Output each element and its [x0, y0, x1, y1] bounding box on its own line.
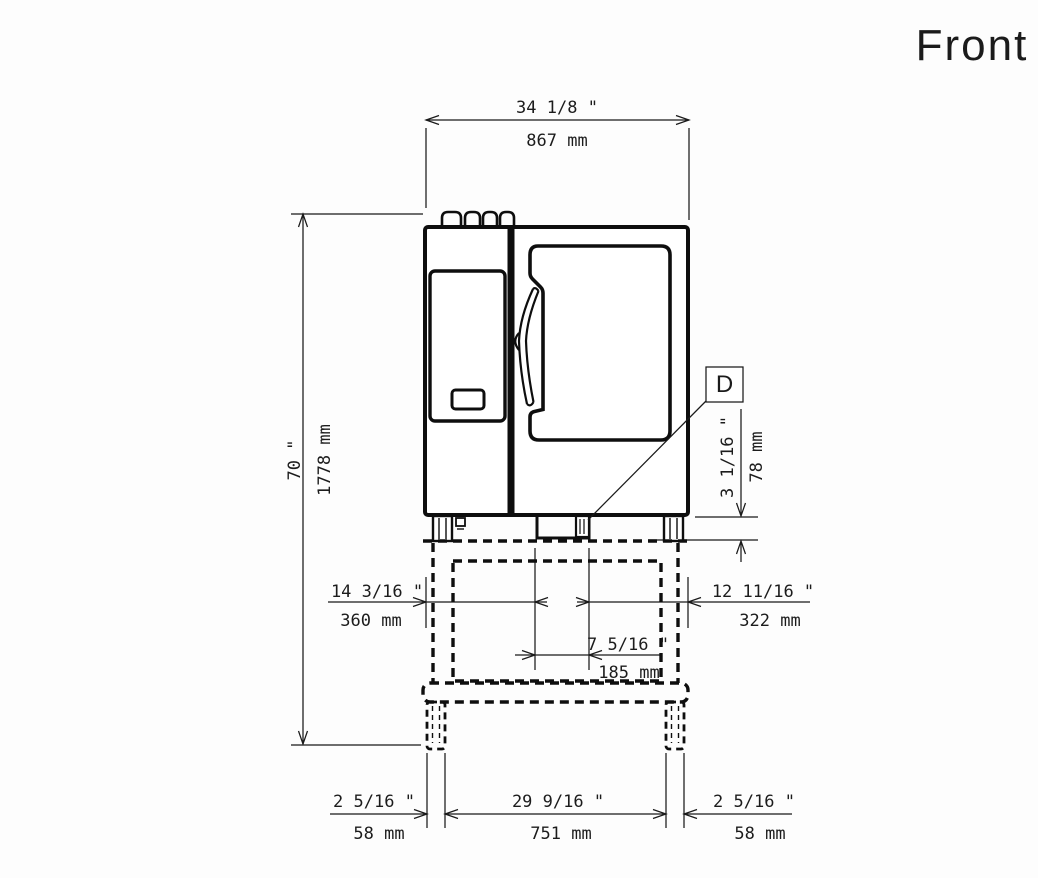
stand-bottom-rail — [423, 683, 688, 702]
dim-offset-left-mm: 360 mm — [340, 611, 401, 631]
dim-height-mm: 1778 mm — [315, 424, 335, 496]
dim-height-in: 70 " — [285, 440, 305, 481]
right-foot — [664, 516, 683, 541]
drawing-svg: D 34 1/8 " 867 mm 70 " 1778 mm 3 1/16 " … — [0, 0, 1038, 878]
technical-drawing-front-view: D 34 1/8 " 867 mm 70 " 1778 mm 3 1/16 " … — [0, 0, 1038, 878]
dim-leg-span-mm: 751 mm — [530, 824, 591, 844]
view-title: Front — [916, 21, 1029, 70]
detail-label: D — [716, 371, 733, 398]
dim-leg-right-in: 2 5/16 " — [713, 792, 795, 812]
oven-feet — [433, 515, 683, 541]
dim-drain-mm: 185 mm — [598, 663, 659, 683]
door-window — [530, 246, 670, 440]
dim-width-in: 34 1/8 " — [516, 98, 598, 118]
dim-leg-right-mm: 58 mm — [734, 824, 785, 844]
middle-foot — [576, 516, 589, 537]
dim-leg-left-mm: 58 mm — [353, 824, 404, 844]
oven-outline — [425, 212, 688, 541]
dim-foot-height-mm: 78 mm — [747, 431, 767, 482]
dim-offset-right-mm: 322 mm — [739, 611, 800, 631]
stand-left-leg — [427, 702, 445, 749]
dim-drain-in: 7 5/16 " — [587, 635, 669, 655]
drain-bolt — [456, 518, 465, 526]
dim-foot-height-in: 3 1/16 " — [718, 416, 738, 498]
dim-leg-span-in: 29 9/16 " — [512, 792, 604, 812]
left-foot — [433, 516, 452, 541]
control-display — [452, 390, 484, 409]
dim-width-mm: 867 mm — [526, 131, 587, 151]
stand-right-leg — [666, 702, 684, 749]
dim-offset-left-in: 14 3/16 " — [331, 582, 423, 602]
dim-offset-right-in: 12 11/16 " — [712, 582, 814, 602]
dim-leg-left-in: 2 5/16 " — [333, 792, 415, 812]
